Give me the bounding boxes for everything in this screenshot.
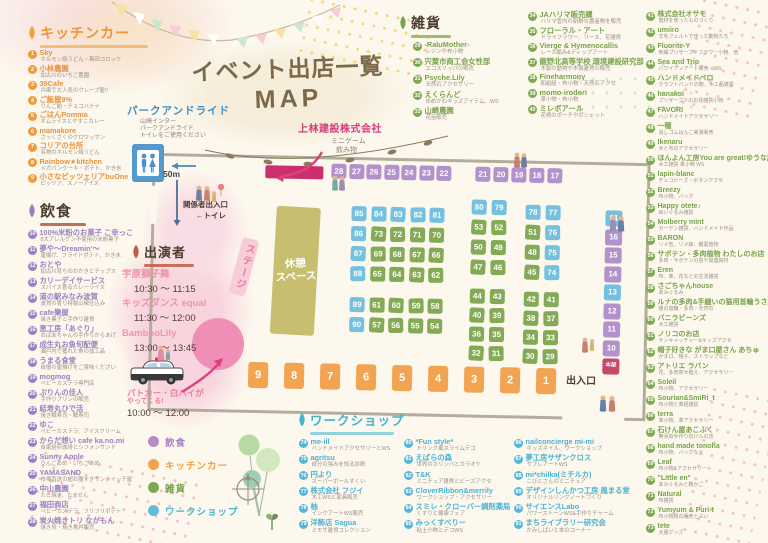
vendor-name: スミレ・クローバー調剤薬局 [416,503,511,511]
performer-name: BambooLily [122,327,242,342]
vendor-desc: メガパンケーキ・ポテト、かき氷 [40,166,122,172]
brush-underline [40,223,86,226]
brush-underline [40,45,148,48]
vendor-name: 100%米粉のお菓子 こ幸っこ [40,229,134,237]
map-booth: 27 [349,164,364,179]
legend-dot [148,482,159,493]
map-booth: 40 [469,307,485,323]
map-booth: 21 [475,167,490,182]
vendor-list-item: 65 Sourian&SmiRi_t 布小物と革紐雑貨 [646,395,766,411]
vendor-list-item: 72 Yumyum & Puri-t 布小物類の販売と占い [646,507,766,523]
performance-time: 13:00 〜 13:45 [122,342,242,357]
map-booth: 10 [603,340,620,356]
map-booth: 18 [529,168,544,183]
map-booth: 41 [544,292,559,307]
map-booth: 43 [490,289,505,304]
vendor-desc: 布小物と革紐雑貨 [658,403,715,409]
map-booth: 55 [408,318,423,333]
vendor-desc: がま口、帽子、ストラップなど [658,355,760,361]
vendor-list-item: 66 terra 革小物、革アクセサリー [646,411,766,427]
map-booth: 75 [545,245,560,260]
vendor-desc: 花、多肉寄せ植え、アクセサリー [658,371,734,377]
vendor-name: 山崎農園 [425,107,454,115]
workshop-list-col3: 86 nailconcierge mi-mi キッズネイル、ワークショップ 87… [514,438,629,536]
vendor-desc: かみしばいと本のコーナー [526,528,606,534]
vendor-number: 61 [646,332,655,341]
vendor-desc: りんご飴・チョコバナナ [40,104,100,110]
legend-label: ワークショップ [165,504,239,518]
map-booth: 8 [284,363,305,389]
map-booth: 86 [351,226,366,241]
vendor-number: 74 [299,439,308,448]
map-booth: 68 [390,247,405,262]
police-line1: パトカー・白バイが [127,388,204,398]
sponsor-booth [265,165,323,179]
map-booth: 84 [371,206,386,221]
vendor-name: 小林農園 [40,65,90,73]
map-booth: 77 [545,205,560,220]
vendor-desc: 木製の動物や木製雑貨の販売 [540,66,644,72]
vendor-list-item: 10 100%米粉のお菓子 こ幸っこ 8大アレルゲン不使用の米粉菓子 [28,229,198,245]
vendor-list-item: 77 株式会社 フジイ 木工WSと家具販売 [299,487,401,503]
vendor-list-item: 47 FAVORI ハンドメイドアクセサリー [646,107,766,123]
vendor-number: 77 [299,487,308,496]
vendor-name: ゆこ [40,421,121,429]
vendor-desc: スパイス香るカレーライス [40,285,106,291]
zakka-list-col1: 29 -RaluMother- レジンや布小物 30 宍粟市商工会女性部 エコス… [413,41,525,124]
vendor-list-item: 64 Soleil 布小物、アクセサリー [646,379,766,395]
vendor-desc: ミニチュア雑貨とビーズアクセ [416,479,492,485]
vendor-list-item: 34 JAハリマ販売課 ハリマ管内の新鮮な農産物を販売 [528,11,643,27]
vendor-name: 宍粟市商工会女性部 [425,58,491,66]
vendor-name: 39Cafe [40,80,108,88]
vendor-number: 31 [413,75,422,84]
vendor-list-item: 67 石けん屋あこふく 無添加手作り石けんの店 [646,427,766,443]
vendor-name: *Fun style* [416,438,476,446]
vendor-number: 80 [404,439,413,448]
vendor-desc: レース編み&ディップアート [540,50,619,56]
workshop-list-col1: 74 me-ill ハンドメイドアクセサリーとWS 75 agritsu 自分の… [299,438,401,536]
rest-label-line2: スペース [275,270,316,285]
vendor-number: 67 [646,428,655,437]
vendor-list-item: 38 Fineharmony 和組紐・布小物・天然石アクセ [528,73,643,89]
map-booth: 60 [388,298,404,314]
vendor-list-item: 4 ご飯屋9% りんご飴・チョコバナナ [28,96,198,112]
vendor-number: 66 [646,412,655,421]
vendor-list-item: 73 tete 犬服グッズ [646,523,766,539]
vendor-list-item: 86 nailconcierge mi-mi キッズネイル、ワークショップ [514,438,629,454]
sponsor-item2: 飲み物 [336,147,357,155]
map-booth: 53 [471,219,487,235]
booth-block-c2: 4241383734333029 [522,292,559,365]
vendor-desc: インクアートWS販売 [311,511,364,517]
vendor-number: 68 [646,444,655,453]
map-booth: 24 [401,165,416,180]
vendor-desc: あみぐるみ [658,291,714,297]
workshop-list-col2: 80 *Fun style* ドリンク風スライムデコ 81 えばらの森 世界のカ… [404,438,511,536]
vendor-number: 46 [646,92,655,101]
vendor-name: まちライブラリー研究会 [526,519,606,527]
vendor-name: Psyche.Lily [425,74,475,82]
vendor-desc: エコスリッパの販売 [425,66,491,72]
vendor-list-item: 46 hanakoi プリザーブドのお花雑貨小物 [646,91,766,107]
vendor-number: 49 [646,140,655,149]
map-booth: 3 [464,366,485,392]
vendor-desc: 木と布のアクセサリー [658,147,709,153]
section-header-food: 飲食 [27,203,86,226]
map-booth: 79 [492,200,507,215]
vendor-desc: 天然石アクセサリー [425,82,475,88]
map-booth: 59 [408,298,423,313]
map-booth: 85 [351,206,366,221]
vendor-list-item: 60 バニラビーンズ 木工雑貨 [646,315,766,331]
vendor-desc: スーパーボールすくい [311,479,366,485]
vendor-number: 54 [646,220,655,229]
vendor-number: 72 [646,508,655,517]
vendor-number: 81 [404,455,413,464]
vendor-desc: ぬいぐるみ雑貨 [658,211,702,217]
vendor-name: からだ想い cafe ka.no.mi [40,437,125,445]
vendor-name: cafe樂屋 [40,309,95,317]
vendor-number: 6 [28,127,37,136]
vendor-list-item: 55 BARON リメ缶、リメ鉢、観葉植物 [646,235,766,251]
vendor-number: 36 [528,43,537,52]
vendor-list-item: 54 Molberry mint ガーデン雑貨、ハンドメイド作品 [646,219,766,235]
vendor-desc: おばあちゃんの手作りからあげ [40,333,116,339]
map-booth: 17 [547,168,562,183]
legend-label: 飲食 [165,435,186,449]
vendor-desc: キッズネイル、ワークショップ [526,446,602,452]
vendor-desc: ガーデン雑貨、ハンドメイド作品 [658,227,734,233]
map-booth: 4 [428,366,449,392]
vendor-name: CloverRibbon&merrily [416,487,493,495]
vendor-number: 57 [646,268,655,277]
vendor-name: momo-irodori [540,89,587,97]
legend-item: 飲食 [148,430,239,453]
vendor-list-item: 32 えくらんど ゆめかわキッズアイテム、WS [413,91,525,108]
vendor-desc: 無添加手作り石けんの店 [658,435,714,441]
vendor-list-item: 33 山崎農園 花苗販売 [413,107,525,124]
vendor-list-item: 82 T&K ミニチュア雑貨とビーズアクセ [404,471,511,487]
vendor-desc: 兵庫で大人気のクレープ屋!! [40,88,108,94]
vendor-number: 20 [28,390,37,399]
vendor-list-item: 85 みっくすべりー 粘土小物とデコWS [404,519,511,535]
vendor-number: 69 [646,460,655,469]
map-booth: 26 [366,164,381,179]
vendor-list-item: 62 帽子好きな がま口屋さん あちゅ がま口、帽子、ストラップなど [646,347,766,363]
vendor-desc: パワーストーンWS&手作りチャーム [526,511,614,517]
toilet-direction-label: ←トイレ [196,211,226,220]
leaf-icon [398,16,408,30]
vendor-list-item: 53 Happy otete♪ ぬいぐるみ雑貨 [646,203,766,219]
map-booth: 51 [525,224,541,240]
leaf-icon [297,413,307,427]
vendor-desc: くすりと健康フェア [416,511,511,517]
booth-block-b1: 8079535250494746 [470,200,507,276]
vendor-number: 9 [28,174,37,183]
vendor-number: 56 [646,252,655,261]
vendor-number: 63 [646,364,655,373]
vendor-list-item: 69 Leaf 布小物&アクセサリー [646,459,766,475]
map-booth: 57 [368,317,384,333]
vendor-list-item: 59 ルナの多肉&手縫いの猫用首輪うさ屋 猫の首輪・多肉・天然石 [646,299,766,315]
vendor-desc: ホルモン焼うどん・黒田コロッケ [40,57,122,63]
map-booth: 19 [511,167,526,182]
vendor-name: T&K [416,471,492,479]
vendor-number: 4 [28,96,37,105]
map-booth: 36 [469,326,484,341]
map-booth: 9 [248,362,269,388]
vendor-desc: 焼き菓子と手作り雑貨 [40,317,95,323]
vendor-desc: プリザーブドのお花雑貨小物 [658,99,724,105]
vendor-list-item: 75 agritsu 自分の強みを知る診断 [299,454,401,470]
vendor-desc: 和組紐・布小物・天然石アクセ [540,81,616,87]
vendor-number: 64 [646,380,655,389]
vendor-list-item: 48 一穂 消しゴムはんこ実演販売 [646,123,766,139]
map-booth: 39 [489,308,504,323]
vendor-number: 38 [528,74,537,83]
booth-block-a2: 89616059589057565554 [349,297,443,334]
section-header-workshop: ワークショップ [297,412,405,435]
zakka-list-col2: 34 JAハリマ販売課 ハリマ管内の新鮮な農産物を販売 35 フローラル・アート… [528,11,643,120]
booth-block-c1: 7877517648754574 [524,205,561,281]
vendor-list-item: 45 ハンドメイドペロ クラフトバンドの鞄、木工品雑貨 [646,75,766,91]
vendor-desc: 花柄のポーチやポシェット [540,113,606,119]
vendor-name: 円より [311,471,366,479]
vendor-list-item: 36 Vierge & Hymenocallis レース編み&ディップアート [528,42,643,58]
vendor-desc: 世界のカリンバとカラオケ [416,462,482,468]
vendor-number: 23 [28,438,37,447]
leaf-icon [27,26,37,40]
vendor-name: Sunny Apple [40,453,100,461]
vendor-desc: あみぐるみと鞄かご [658,483,704,489]
performance-slot: BambooLily 13:00 〜 13:45 [122,327,242,356]
vendor-desc: ゆめかわキッズアイテム、WS [425,99,499,105]
vendor-list-item: 56 サボテン・多肉植物 わたしのお店 多肉・サボテンの苗や関連資材 [646,251,766,267]
section-heading: 雑貨 [411,15,441,31]
map-booth: 63 [408,267,424,283]
vendor-number: 75 [299,455,308,464]
legend-label: キッチンカー [165,458,228,472]
leaf-icon [131,245,141,259]
vendor-number: 17 [28,342,37,351]
vendor-list-item: 30 宍粟市商工会女性部 エコスリッパの販売 [413,58,525,75]
vendor-number: 53 [646,204,655,213]
brush-underline [411,35,451,38]
vendor-desc: ベビーカステラ、フリフリポテト [40,509,122,515]
map-booth: 11 [603,321,620,337]
vendor-name: Vierge & Hymenocallis [540,42,619,50]
vendor-number: 37 [528,58,537,67]
vendor-number: 62 [646,348,655,357]
vendor-number: 39 [528,89,537,98]
vendor-name: mogmog [40,373,95,381]
zakka-list-col3: 41 株式会社オサモ 廃材を使ったものづくり 42 umiiro 羊毛フェルトで… [646,11,766,539]
vendor-name: カリーデイサービス [40,277,106,285]
police-visit-note: パトカー・白バイが やってくる! 10:00 〜 12:00 [127,388,204,419]
vendor-name: おとや [40,261,116,269]
vendor-number: 19 [28,374,37,383]
vendor-desc: こびとさんのミニチュア [526,479,592,485]
map-booth: 81 [429,208,444,223]
vendor-list-item: 49 Ikenaru 木と布のアクセサリー [646,139,766,155]
police-time: 10:00 〜 12:00 [127,408,204,419]
brush-underline [144,264,194,267]
vendor-number: 65 [646,396,655,405]
vendor-number: 59 [646,300,655,309]
vendor-number: 28 [28,518,37,527]
vendor-desc: ベビーカステラ、アイスクリーム [40,429,121,435]
vendor-number: 26 [28,486,37,495]
vendor-number: 3 [28,81,37,90]
vendor-desc: 革小物・布小物 [540,97,587,103]
map-booth: 66 [428,247,444,263]
vendor-list-item: 80 *Fun style* ドリンク風スライムデコ [404,438,511,454]
vendor-desc: 8大アレルゲン不使用の米粉菓子 [40,237,134,243]
vendor-number: 87 [514,455,523,464]
vendor-desc: たこ焼き、たません [40,493,89,499]
performance-slot: 宇原獅子舞 10:30 〜 11:15 [122,268,242,297]
vendor-name: 中山農園 [40,485,89,493]
vendor-number: 71 [646,492,655,501]
vendor-name: 結寿丸ひで活 [40,405,90,413]
vendor-name: 小さなピッツェリアbuOne [40,173,129,181]
vendor-desc: 多肉・サボテンの苗や関連資材 [658,259,765,265]
vendor-desc: ベビーカステラ専門店 [40,381,95,387]
staff-entrance-gap [150,186,157,224]
sprout-icon [266,514,278,530]
map-booth: 71 [409,227,424,242]
vendor-list-item: 81 えばらの森 世界のカリンバとカラオケ [404,454,511,470]
map-booth: 44 [470,288,485,303]
vendor-desc: 木工WSと家具販売 [311,495,364,501]
map-booth: 23 [419,165,434,180]
vendor-desc: ハンドメイドアクセサリー [658,115,719,121]
vendor-list-item: 37 龍野北高等学校 環境建設研究部 木製の動物や木製雑貨の販売 [528,58,643,74]
vendor-number: 55 [646,236,655,245]
map-booth: 46 [490,260,505,275]
brush-underline [310,432,394,435]
vendor-list-item: 91 まちライブラリー研究会 かみしばいと本のコーナー [514,519,629,535]
map-booth: 90 [349,317,364,332]
vendor-number: 8 [28,158,37,167]
vendor-number: 43 [646,44,655,53]
vendor-list-item: 44 Sea and Trip ハワイアンアート販売・WS [646,59,766,75]
map-booth: 73 [370,226,386,242]
vendor-number: 25 [28,470,37,479]
vendor-number: 89 [514,487,523,496]
section-header-kitchen: キッチンカー [27,25,148,48]
map-booth: 45 [524,264,540,280]
vendor-number: 15 [28,310,37,319]
vendor-desc: 焼き鳥・焼き鳥丼販売 [40,525,115,531]
map-booth: 7 [320,363,341,389]
legend-item: 雑貨 [148,476,239,499]
vendor-list-item: 6 mamakore さっくさくのクロワッサン [28,127,198,143]
map-booth: 50 [471,239,486,254]
map-booth: 34 [523,330,538,345]
vendor-number: 32 [413,91,422,100]
vendor-desc: 布小物&アクセサリー [658,467,707,473]
vendor-number: 44 [646,60,655,69]
vendor-number: 42 [646,28,655,37]
rest-space: 休憩 スペース [270,206,321,336]
vendor-desc: 革小物、革アクセサリー [658,419,714,425]
vendor-number: 45 [646,76,655,85]
vendor-desc: 自分の強みを知る診断 [311,462,366,468]
vendor-desc: 自慢の唐揚げをご賞味ください [40,365,116,371]
vendor-number: 91 [514,520,523,529]
vendor-number: 79 [299,520,308,529]
vendor-number: 21 [28,406,37,415]
vendor-name: ぷりんの佳人 [40,389,90,397]
map-booth: 5 [392,365,413,391]
vendor-name: ミレボアール [540,105,606,113]
vendor-desc: 消しゴムはんこ実演販売 [658,131,714,137]
vendor-number: 14 [28,294,37,303]
vendor-number: 70 [646,476,655,485]
leaf-icon [27,204,37,218]
map-booth: 58 [427,299,442,314]
section-heading: ワークショップ [310,414,405,428]
vendor-desc: さっくさくのクロワッサン [40,135,106,141]
vendor-name: うまる食堂 [40,357,116,365]
vendor-desc: 廃材を使ったものづくり [658,19,714,25]
vendor-list-item: 71 Natural 布雑貨 [646,491,766,507]
vendor-desc: オムライスとやすこカレー [40,119,105,125]
vendor-list-item: 63 アトリエ ラバン 花、多肉寄せ植え、アクセサリー [646,363,766,379]
vendor-desc: 波賀の香り特製山椒仕込み [40,301,106,307]
map-booth: 33 [543,330,558,345]
booth-column-right: 9116151413121110本部 [602,210,622,374]
map-booth: 29 [542,349,557,364]
vendor-number: 82 [404,471,413,480]
vendor-name: 株式会社 フジイ [311,487,364,495]
vendor-number: 12 [28,262,37,271]
map-booth: 47 [470,259,486,275]
map-booth: 87 [350,246,366,262]
map-booth: 64 [389,267,404,282]
performer-schedule: 宇原獅子舞 10:30 〜 11:15 キッズダンス equal 11:30 〜… [122,268,242,356]
section-heading: 飲食 [40,203,72,220]
map-booth: 25 [384,165,399,180]
performer-name: キッズダンス equal [122,297,242,312]
vendor-list-item: 42 umiiro 羊毛フェルトで作った動物たち [646,27,766,43]
section-header-performers: 出演者 [131,244,194,267]
vendor-list-item: 18 うまる食堂 自慢の唐揚げをご賞味ください [28,357,198,373]
map-booth: 88 [350,266,365,281]
map-booth: 6 [356,364,377,390]
map-booth: 38 [523,310,539,326]
map-booth: 62 [428,268,443,283]
map-booth: 31 [489,346,504,361]
vendor-number: 16 [28,326,37,335]
vendor-desc: ハリマ管内の新鮮な農産物を販売 [540,19,622,25]
vendor-number: 24 [28,454,37,463]
map-booth: 32 [468,345,484,361]
vendor-desc: 瀬戸内で獲れた魚の加工品 [40,349,106,355]
vendor-desc: 布小物、バッグ [658,195,694,201]
map-booth: 54 [427,319,442,334]
vendor-list-item: 5 ごはんPomma オムライスとやすこカレー [28,111,198,127]
map-booth: 56 [388,318,403,333]
vendor-list-item: 31 Psyche.Lily 天然石アクセサリー [413,74,525,91]
vendor-name: YAMASAND [40,469,133,477]
map-booth: 89 [349,297,364,312]
vendor-number: 84 [404,504,413,513]
vendor-list-item: 89 デザインしんかつ工房 風まる堂 オリジナルリングノートづくり [514,487,629,503]
map-booth: 78 [525,205,540,220]
